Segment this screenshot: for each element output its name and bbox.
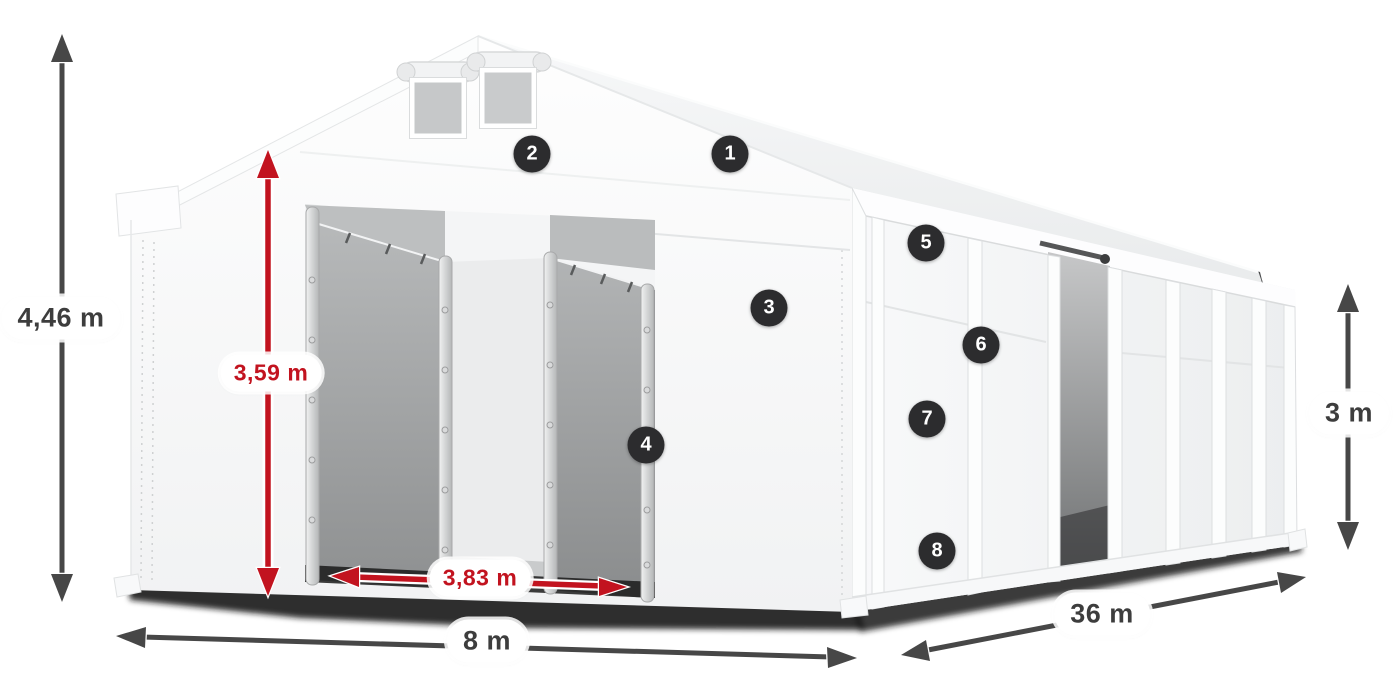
tent-illustration <box>0 0 1400 700</box>
door-panel-right <box>550 258 648 598</box>
panel-strip <box>1252 298 1266 552</box>
dimension-label-total-height: 4,46 m <box>1 297 120 340</box>
eave-corner-block <box>116 186 181 236</box>
door-panel-left <box>312 222 445 588</box>
callout-7: 7 <box>909 401 946 438</box>
panel-strip <box>968 238 982 595</box>
callout-6: 6 <box>963 327 1000 364</box>
callout-8: 8 <box>919 533 956 570</box>
interior-far-wall <box>445 258 550 562</box>
entrance <box>305 205 655 602</box>
panel-strip <box>1166 280 1180 565</box>
panel-strip <box>872 217 884 609</box>
vent-window <box>482 70 534 126</box>
vent-window <box>412 80 464 136</box>
dimension-label-entrance-height: 3,59 m <box>221 355 322 392</box>
dimension-label-side-height: 3 m <box>1309 392 1389 435</box>
panel-strip <box>1284 305 1297 547</box>
callout-4: 4 <box>628 427 665 464</box>
dimension-label-length: 36 m <box>1054 593 1150 636</box>
dimension-label-base-width: 8 m <box>447 620 527 663</box>
panel-strip <box>852 188 866 612</box>
panel-strip <box>1048 255 1060 582</box>
tent-dimensions-diagram: 4,46 m 3,59 m 3,83 m 8 m 36 m 3 m 1 2 3 … <box>0 0 1400 700</box>
callout-1: 1 <box>712 136 749 173</box>
callout-3: 3 <box>751 290 788 327</box>
panel-strip <box>1212 289 1226 558</box>
callout-2: 2 <box>514 136 551 173</box>
callout-5: 5 <box>908 225 945 262</box>
panel-strip <box>1108 267 1122 573</box>
dimension-label-entrance-width: 3,83 m <box>430 560 531 597</box>
